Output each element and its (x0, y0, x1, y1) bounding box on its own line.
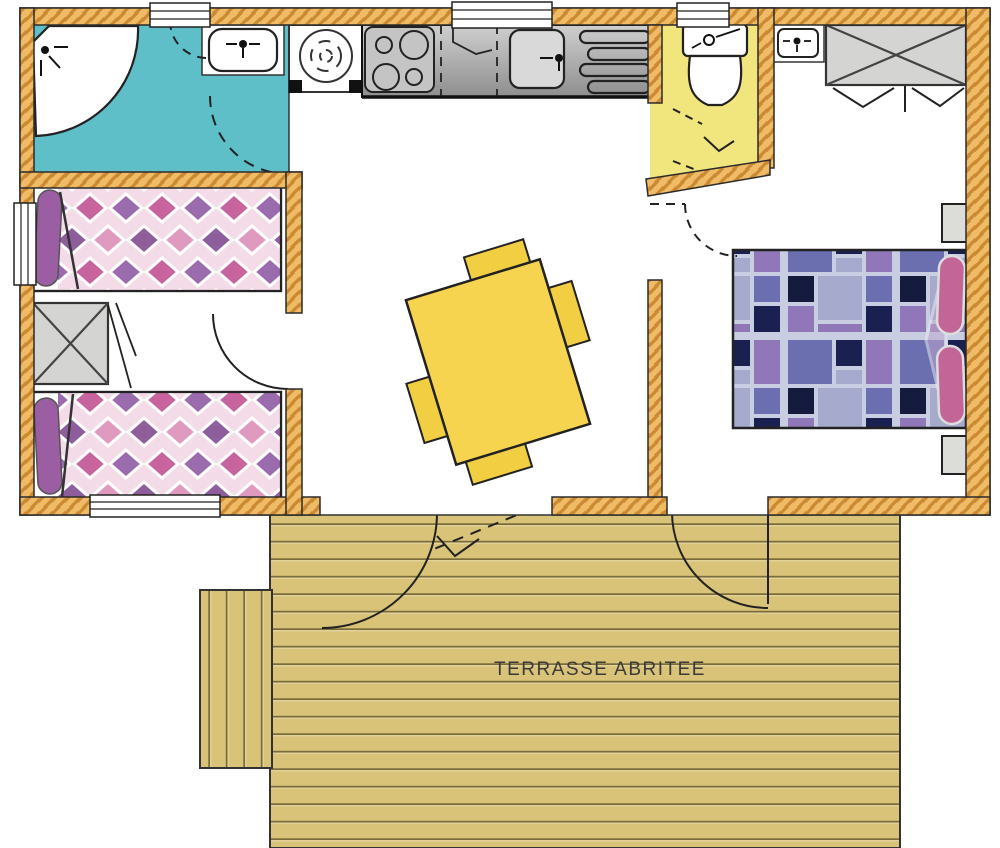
floor-plan: TERRASSE ABRITEE (0, 0, 1000, 848)
floor-plan-page: TERRASSE ABRITEE (0, 0, 1000, 848)
bed-cover-pattern (58, 393, 280, 498)
faucet-dot (794, 38, 801, 45)
house (14, 2, 990, 517)
faucet-dot (239, 40, 247, 48)
wall-twin-living-upper (286, 172, 302, 313)
water-heater-icon (300, 30, 352, 82)
window-kitchen (452, 2, 552, 28)
window-twin-left (14, 203, 36, 285)
double-bed (733, 250, 966, 428)
sink-faucet-dot (555, 54, 563, 62)
water-heater-foot-left (289, 80, 302, 93)
wall-bottom-right (768, 497, 990, 515)
pillow (34, 189, 63, 286)
pillow (937, 346, 966, 425)
pillow (937, 256, 966, 335)
single-bed-2 (33, 392, 281, 499)
window-bathroom (150, 3, 210, 27)
shower-head-icon (41, 46, 49, 54)
wall-twin-living-lower (286, 389, 302, 515)
wall-wc-right (758, 8, 774, 168)
bed-cover-pattern (58, 185, 280, 290)
terrace-deck (270, 513, 900, 848)
water-heater-foot-right (349, 80, 362, 93)
kitchen (289, 24, 650, 97)
terrace: TERRASSE ABRITEE (200, 501, 900, 848)
terrace-steps (200, 590, 272, 768)
window-twin-bottom (90, 495, 220, 517)
stove (365, 27, 434, 92)
pillow (34, 397, 63, 494)
wall-right (966, 8, 990, 515)
wall-living-bedroom (648, 280, 662, 497)
terrace-label: TERRASSE ABRITEE (494, 659, 706, 680)
window-wc (677, 3, 729, 27)
single-bed-1 (33, 184, 281, 291)
wall-wc-left (648, 25, 662, 103)
wall-bathroom-bedroom (20, 172, 302, 188)
toilet-bowl (689, 56, 741, 105)
wall-bottom-center (552, 497, 667, 515)
vanity (772, 24, 824, 62)
